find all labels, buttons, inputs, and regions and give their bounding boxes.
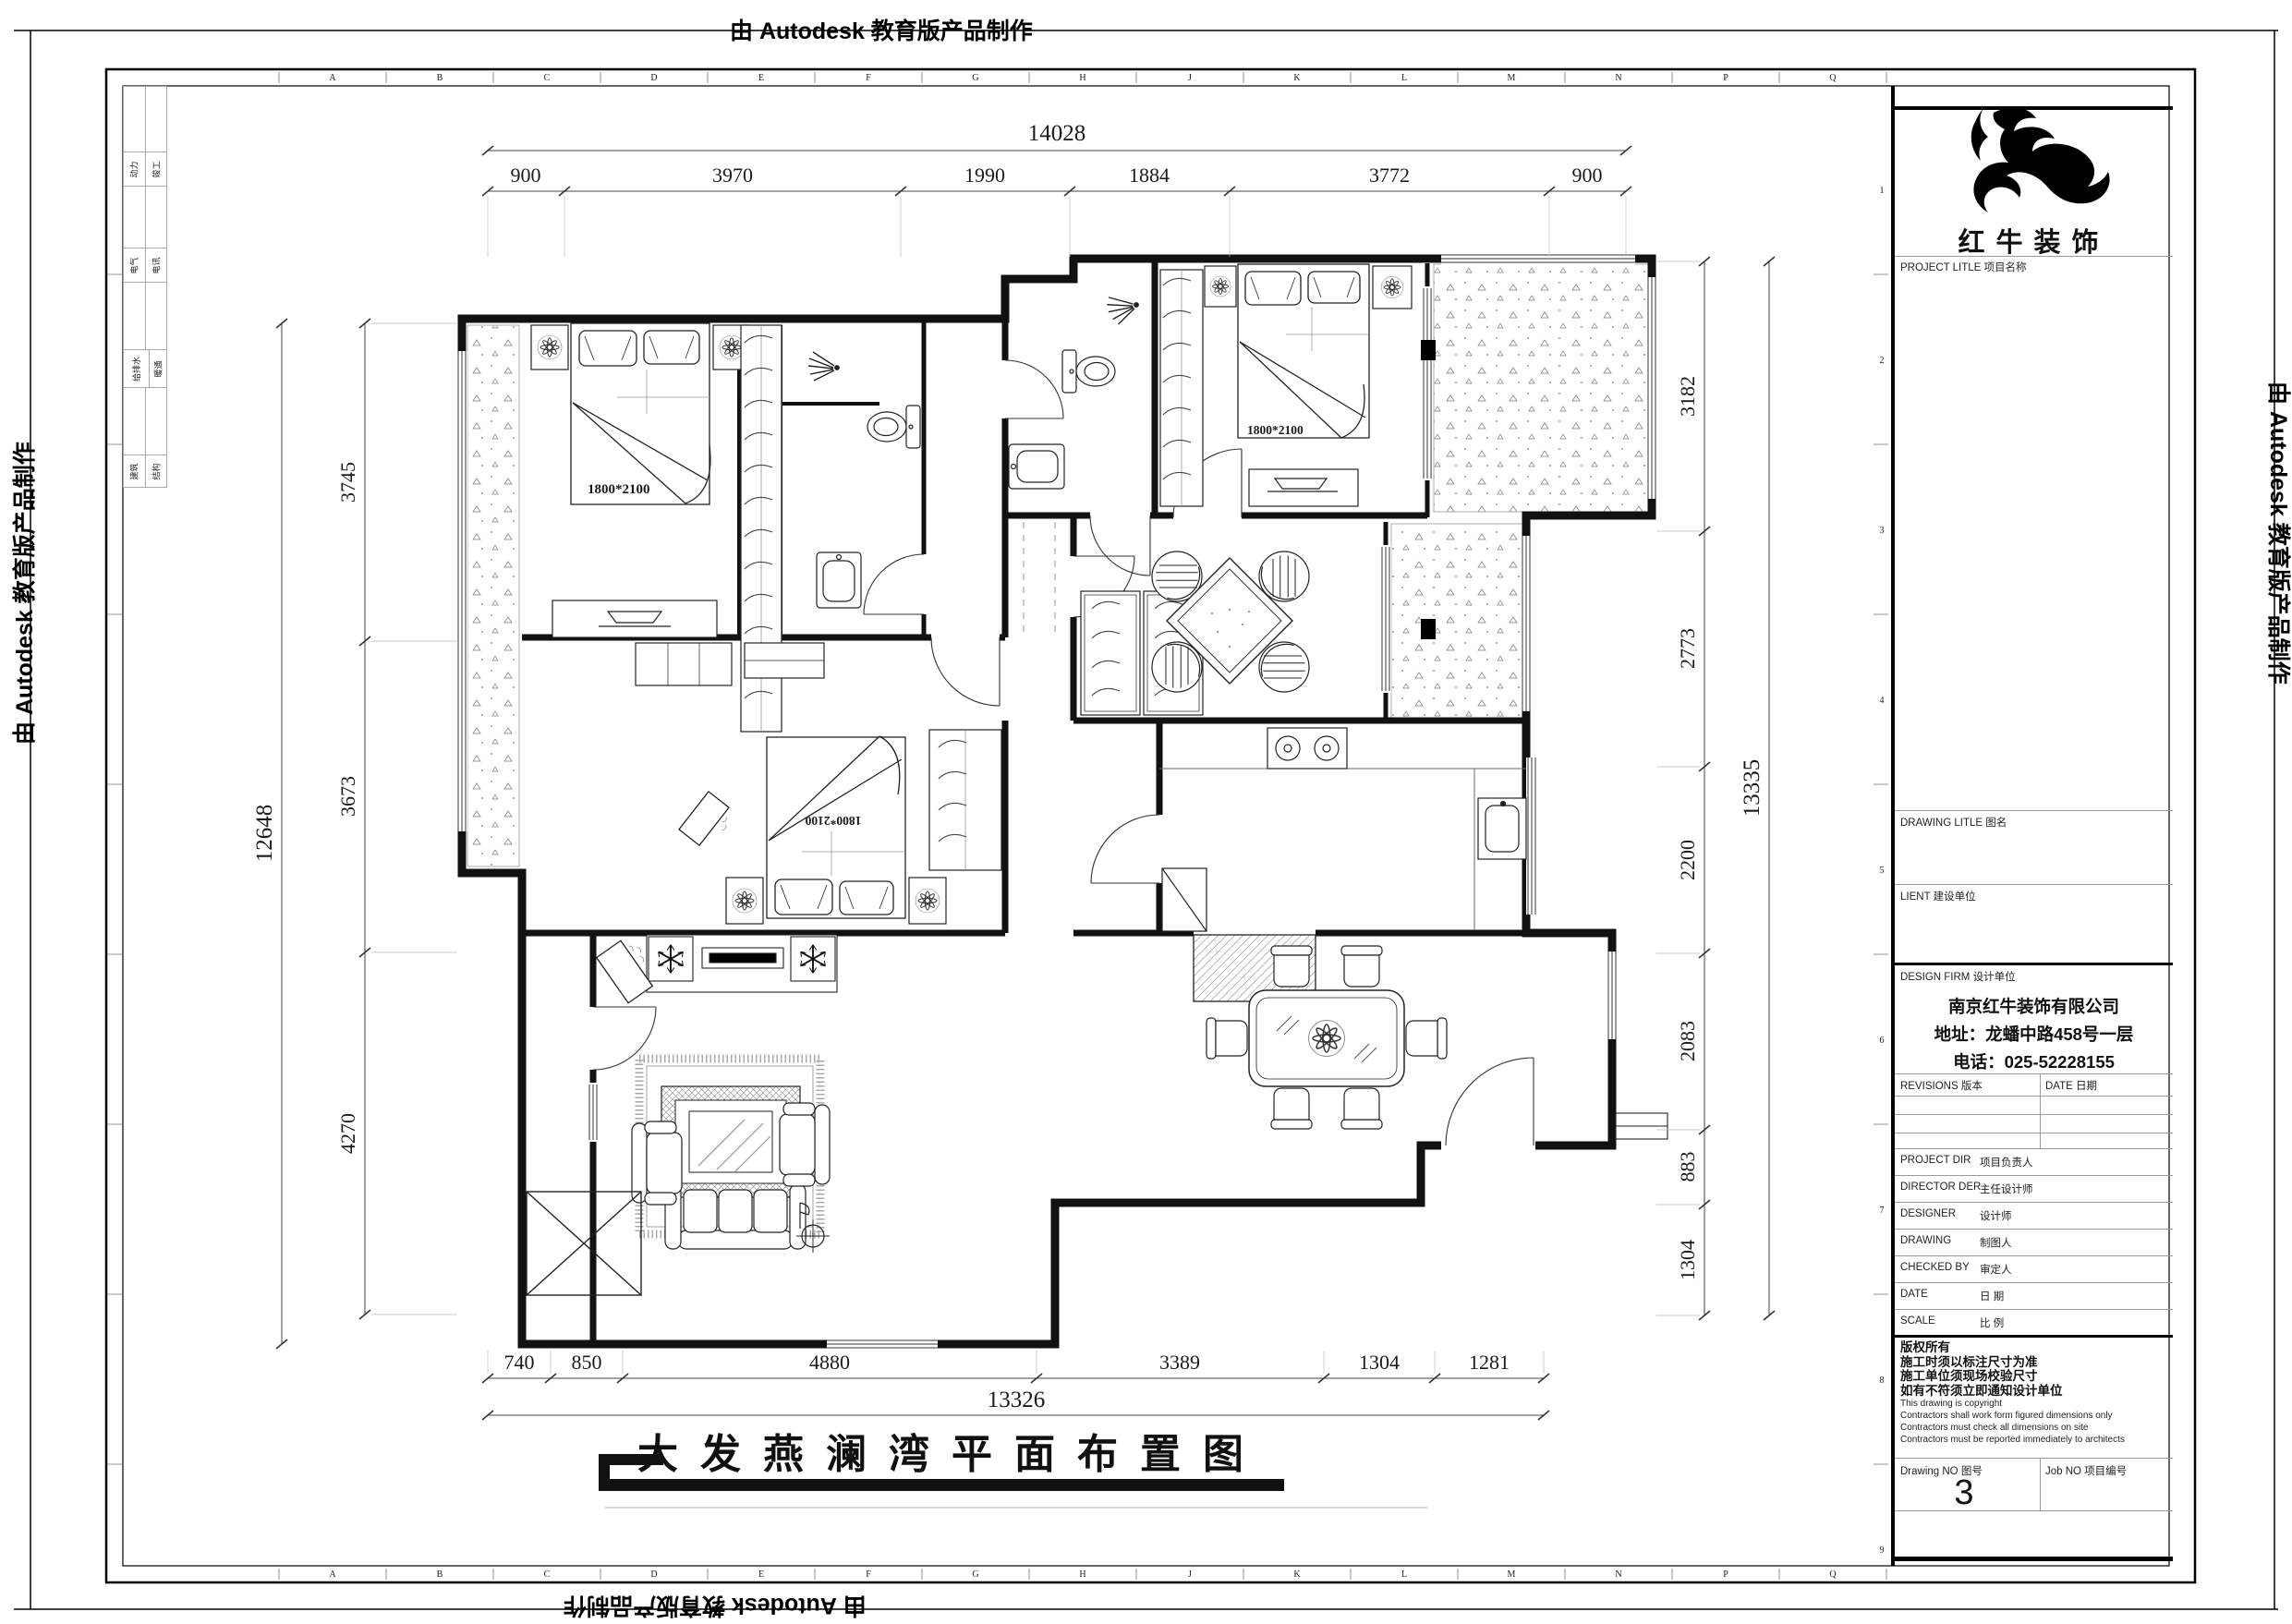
svg-text:A: A: [329, 73, 336, 83]
svg-text:1304: 1304: [1359, 1351, 1400, 1374]
svg-text:E: E: [758, 73, 764, 83]
grid-letters-top: ABCDEFGHJKLMNPQ: [329, 73, 1837, 83]
svg-text:J: J: [1188, 1569, 1192, 1580]
svg-text:E: E: [758, 1569, 764, 1580]
armchair-right: [780, 1103, 830, 1186]
bedroom2-bed: [1238, 264, 1369, 438]
plot-stamp-left: 由 Autodesk 教育版产品制作: [6, 467, 40, 745]
staff-row-en: DRAWING: [1900, 1235, 1951, 1246]
staff-row-zh: 主任设计师: [1980, 1182, 2033, 1196]
svg-text:L: L: [1401, 73, 1407, 83]
copyright-line: 施工单位须现场校验尺寸: [1900, 1369, 2125, 1384]
svg-text:6: 6: [1880, 1036, 1885, 1046]
copyright-line: Contractors shall work form figured dime…: [1900, 1410, 2125, 1422]
plot-stamp-right: 由 Autodesk 教育版产品制作: [2263, 382, 2292, 659]
svg-text:4270: 4270: [336, 1113, 359, 1154]
svg-text:3389: 3389: [1159, 1351, 1200, 1374]
svg-text:3673: 3673: [336, 776, 359, 817]
svg-text:G: G: [972, 1569, 978, 1580]
svg-text:900: 900: [511, 164, 541, 187]
svg-text:M: M: [1508, 73, 1516, 83]
copyright-line: Contractors must be reported immediately…: [1900, 1434, 2125, 1446]
bed-size-label-rotated: 1800*2100: [805, 814, 861, 828]
svg-text:2200: 2200: [1676, 840, 1699, 880]
revisions-label: REVISIONS 版本: [1900, 1078, 1983, 1093]
staff-row-en: DIRECTOR DER: [1900, 1182, 1981, 1193]
svg-text:2083: 2083: [1676, 1021, 1699, 1061]
company-address: 地址：龙蟠中路458号一层: [1895, 1021, 2173, 1048]
grid-numbers-right: 123456789: [1880, 186, 1885, 1556]
titleblock-heavy-bottom: [1895, 1557, 2173, 1561]
svg-text:H: H: [1079, 1569, 1085, 1580]
svg-text:C: C: [544, 73, 551, 83]
svg-text:850: 850: [572, 1351, 602, 1374]
svg-text:J: J: [1188, 73, 1192, 83]
staff-row-en: DATE: [1900, 1289, 1928, 1300]
svg-text:7: 7: [1880, 1206, 1885, 1216]
svg-text:1: 1: [1880, 186, 1885, 196]
plan-title: 大发燕澜湾平面布置图: [610, 1421, 1293, 1480]
staff-row-en: SCALE: [1900, 1315, 1935, 1327]
svg-text:3772: 3772: [1369, 164, 1410, 187]
midbed-wardrobe: [929, 730, 1001, 870]
svg-text:B: B: [437, 73, 443, 83]
svg-text:9: 9: [1880, 1545, 1885, 1556]
svg-text:D: D: [650, 73, 657, 83]
master-dresser: [552, 600, 717, 637]
staff-row-zh: 日 期: [1980, 1289, 2004, 1303]
svg-text:5: 5: [1880, 866, 1885, 876]
signoff-cell: 给排水: [124, 350, 150, 387]
entry-step: [1616, 1113, 1667, 1139]
svg-text:900: 900: [1572, 164, 1603, 187]
svg-text:G: G: [972, 73, 978, 83]
staff-row-zh: 项目负责人: [1980, 1155, 2033, 1170]
kitchen: [1162, 728, 1526, 931]
svg-text:1990: 1990: [964, 164, 1005, 187]
svg-text:3: 3: [1880, 526, 1885, 536]
master-bed: [571, 323, 710, 504]
brand-name: 红牛装饰: [1895, 221, 2173, 260]
svg-text:F: F: [866, 1569, 871, 1580]
corridor-dashes: [1024, 522, 1055, 633]
copyright-block: 版权所有 施工时须以标注尺寸为准 施工单位须现场校验尺寸 如有不符须立即通知设计…: [1900, 1340, 2125, 1446]
shaft-box: [527, 1192, 641, 1295]
svg-text:C: C: [544, 1569, 551, 1580]
client-label: LIENT 建设单位: [1900, 889, 1976, 903]
grid-letters-bottom: ABCDEFGHJKLMNPQ: [329, 1569, 1837, 1580]
svg-text:12648: 12648: [252, 805, 277, 863]
svg-text:Q: Q: [1829, 1569, 1837, 1580]
tv-wall-unit: [647, 935, 837, 992]
svg-text:3182: 3182: [1676, 376, 1699, 417]
staff-row-zh: 比 例: [1980, 1315, 2004, 1330]
svg-text:M: M: [1508, 1569, 1516, 1580]
copyright-line: This drawing is copyright: [1900, 1398, 2125, 1410]
floor-plan: 1800*2100: [456, 253, 1667, 1351]
svg-text:13335: 13335: [1740, 759, 1764, 818]
staff-row-en: PROJECT DIR: [1900, 1155, 1971, 1166]
master-bathroom: [808, 352, 920, 608]
svg-text:H: H: [1079, 73, 1085, 83]
plot-stamp-bottom: 由 Autodesk 教育版产品制作: [564, 1591, 867, 1624]
svg-text:N: N: [1615, 1569, 1621, 1580]
svg-text:883: 883: [1676, 1152, 1699, 1182]
dim-top-total: 14028: [1028, 121, 1086, 146]
signoff-cell: 结构: [146, 455, 168, 487]
signoff-table: 动力 竣工 电气 电讯 给排水 暖通 建筑 结构: [123, 86, 167, 488]
title-block: 红牛装饰 PROJECT LITLE 项目名称 DRAWING LITLE 图名…: [1891, 86, 2173, 1566]
staff-row-en: DESIGNER: [1900, 1208, 1956, 1219]
job-no-label: Job NO 项目编号: [2045, 1463, 2127, 1478]
copyright-line: Contractors must check all dimensions on…: [1900, 1422, 2125, 1434]
svg-text:B: B: [437, 1569, 443, 1580]
svg-text:1884: 1884: [1129, 164, 1170, 187]
middle-bathroom: [1009, 289, 1142, 489]
staff-row-zh: 设计师: [1980, 1208, 2012, 1223]
bedroom2-wardrobe: [1160, 270, 1203, 506]
svg-text:13326: 13326: [988, 1388, 1046, 1412]
svg-text:2: 2: [1880, 356, 1885, 366]
titleblock-heavy-top: [1895, 106, 2173, 110]
signoff-cell: 电气: [124, 248, 146, 282]
svg-text:Q: Q: [1829, 73, 1837, 83]
plot-stamp-top: 由 Autodesk 教育版产品制作: [730, 13, 1033, 46]
svg-text:1281: 1281: [1469, 1351, 1510, 1374]
svg-text:F: F: [866, 73, 871, 83]
copyright-line: 如有不符须立即通知设计单位: [1900, 1384, 2125, 1399]
title-bracket-bar: [599, 1479, 1284, 1491]
svg-text:D: D: [650, 1569, 657, 1580]
svg-text:K: K: [1293, 73, 1301, 83]
signoff-cell: 暖通: [150, 350, 167, 387]
svg-text:3970: 3970: [712, 164, 753, 187]
svg-text:L: L: [1401, 1569, 1407, 1580]
copyright-line: 施工时须以标注尺寸为准: [1900, 1355, 2125, 1370]
svg-text:A: A: [329, 1569, 336, 1580]
staff-row-zh: 审定人: [1980, 1262, 2012, 1277]
svg-text:4880: 4880: [809, 1351, 850, 1374]
staff-row-en: CHECKED BY: [1900, 1262, 1970, 1273]
tea-table: [1142, 541, 1319, 702]
svg-text:K: K: [1293, 1569, 1301, 1580]
svg-text:N: N: [1615, 73, 1621, 83]
drawing-title-label: DRAWING LITLE 图名: [1900, 815, 2007, 830]
sofa: [665, 1184, 806, 1249]
revisions-date-label: DATE 日期: [2045, 1078, 2097, 1093]
design-firm-label: DESIGN FIRM 设计单位: [1900, 969, 2016, 984]
svg-text:4: 4: [1880, 696, 1885, 706]
sheet-frame: [106, 69, 2195, 1582]
signoff-cell: 建筑: [124, 455, 146, 487]
svg-text:1304: 1304: [1676, 1240, 1699, 1280]
signoff-cell: 竣工: [146, 152, 168, 186]
svg-text:2773: 2773: [1676, 628, 1699, 669]
company-name: 南京红牛装饰有限公司: [1895, 993, 2173, 1021]
svg-text:P: P: [1723, 1569, 1728, 1580]
svg-text:740: 740: [504, 1351, 535, 1374]
company-phone: 电话：025-52228155: [1895, 1048, 2173, 1076]
bed-size-label: 1800*2100: [1247, 423, 1304, 437]
drawing-number: 3: [1895, 1473, 2033, 1513]
company-info: 南京红牛装饰有限公司 地址：龙蟠中路458号一层 电话：025-52228155: [1895, 993, 2173, 1076]
copyright-line: 版权所有: [1900, 1340, 2125, 1355]
project-title-label: PROJECT LITLE 项目名称: [1900, 260, 2027, 274]
signoff-cell: 电讯: [146, 248, 168, 282]
signoff-cell: 动力: [124, 152, 146, 186]
svg-text:8: 8: [1880, 1376, 1885, 1386]
midbed-dressers: [636, 643, 824, 685]
bedroom2-dresser: [1249, 469, 1358, 506]
staff-row-zh: 制图人: [1980, 1235, 2012, 1250]
svg-text:P: P: [1723, 73, 1728, 83]
svg-text:3745: 3745: [336, 462, 359, 503]
bed-size-label: 1800*2100: [588, 482, 650, 497]
ac-unit-midbed: [679, 792, 737, 852]
